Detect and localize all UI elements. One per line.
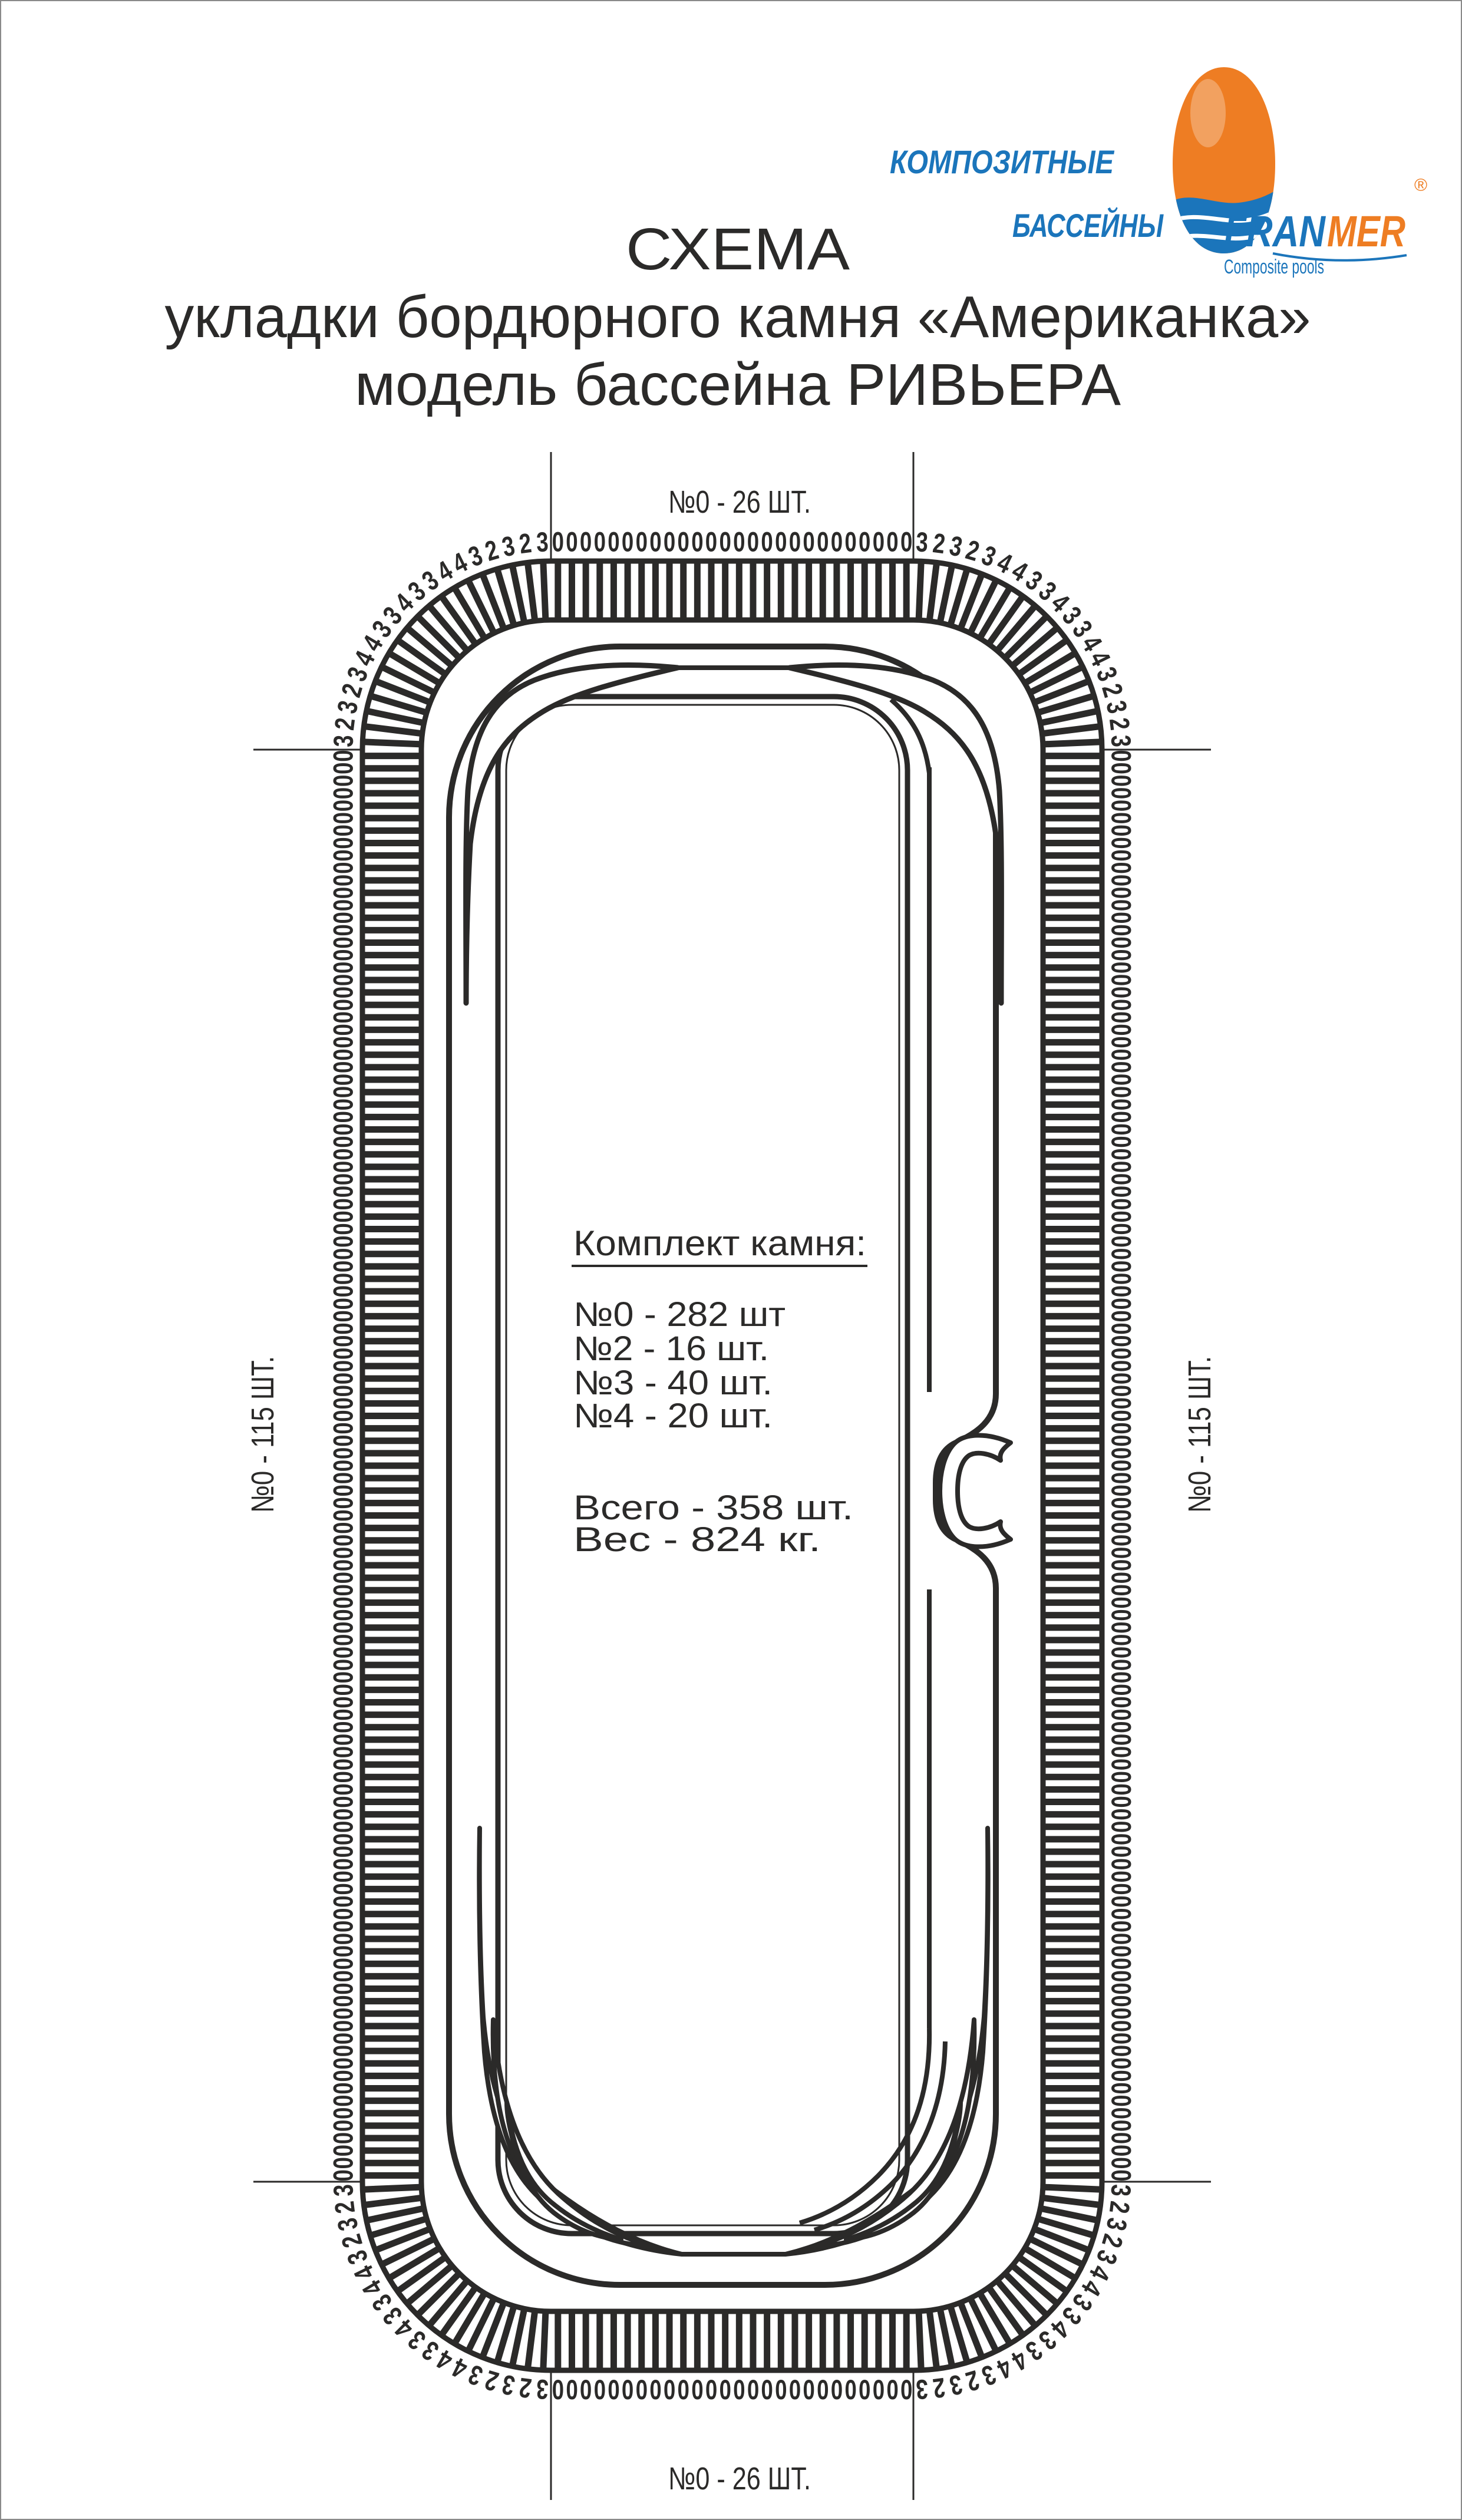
stone-count-digit: 0 [1106, 750, 1137, 761]
corner-leaves-bottom-left [479, 1828, 682, 2254]
brand-tagline: Composite pools [1224, 256, 1324, 278]
stone-count-digit: 0 [608, 2374, 619, 2405]
stone-count-digit: 0 [328, 837, 358, 849]
stone-count-digit: 0 [328, 1397, 358, 1409]
stone-count-digit: 3 [1105, 2183, 1137, 2197]
stone-count-digit: 0 [817, 526, 829, 557]
stone-count-digit: 0 [328, 899, 358, 911]
stone-count-digit: 0 [328, 1485, 358, 1496]
stone-count-digit: 0 [1106, 1348, 1137, 1360]
stone-count-digit: 0 [720, 526, 731, 557]
stone-tick [1042, 2198, 1100, 2205]
stone-count-digit: 0 [328, 1858, 358, 1870]
stone-count-digit: 0 [900, 2374, 912, 2405]
stone-count-digit: 0 [328, 824, 358, 836]
stone-count-digit: 0 [1106, 1236, 1137, 1248]
stone-count-digit: 0 [328, 1622, 358, 1634]
stone-count-digit: 0 [705, 2374, 717, 2405]
stone-count-digit: 0 [328, 1447, 358, 1459]
stone-tick [364, 2198, 422, 2205]
stone-count-digit: 0 [1106, 849, 1137, 861]
stone-count-digit: 3 [536, 2374, 549, 2405]
stone-count-digit: 0 [328, 2132, 358, 2144]
stone-count-digit: 0 [328, 1572, 358, 1584]
stone-count-digit: 0 [328, 1659, 358, 1671]
stone-count-digit: 0 [594, 2374, 606, 2405]
stone-count-digit: 0 [328, 912, 358, 923]
corner-crescent-top-right [790, 665, 1001, 1003]
egg-highlight [1190, 79, 1226, 147]
stone-count-digit: 0 [328, 987, 358, 998]
stone-count-digit: 2 [329, 2199, 361, 2215]
stone-count-digit: 0 [1106, 875, 1137, 886]
stone-count-digit: 0 [1106, 1460, 1137, 1472]
stone-count-digit: 0 [775, 2374, 787, 2405]
stone-count-digit: 0 [328, 1385, 358, 1397]
stone-count-digit: 0 [328, 1472, 358, 1484]
stone-count-digit: 0 [328, 2169, 358, 2181]
stone-count-digit: 0 [328, 1210, 358, 1222]
stone-count-digit: 0 [1106, 1634, 1137, 1646]
stone-count-digit: 0 [1106, 1472, 1137, 1484]
stone-count-digit: 3 [915, 526, 929, 558]
stone-count-digit: 0 [328, 1883, 358, 1895]
stone-count-digit: 0 [328, 936, 358, 948]
stone-count-digit: 0 [328, 1945, 358, 1957]
stone-tick [364, 726, 422, 733]
stone-count-digit: 2 [335, 2231, 368, 2251]
brand-logo: КОМПОЗИТНЫЕ БАССЕЙНЫ FRAN MER ® Composit… [890, 67, 1427, 278]
stone-count-digit: 0 [1106, 1522, 1137, 1534]
stone-count-digit: 0 [328, 1970, 358, 1982]
stone-tick [919, 561, 921, 620]
stone-count-digit: 0 [1106, 1846, 1137, 1858]
stone-count-digit: 0 [1106, 974, 1137, 986]
stone-count-digit: 2 [329, 716, 361, 732]
stone-count-digit: 0 [328, 2020, 358, 2032]
stone-count-digit: 0 [328, 1273, 358, 1285]
stone-count-digit: 0 [328, 1024, 358, 1035]
leaf [479, 1828, 682, 2254]
stone-count-digit: 0 [328, 1871, 358, 1882]
stone-kit-legend: Комплект камня: №0 - 282 шт №2 - 16 шт. … [572, 1223, 867, 1559]
stone-count-digit: 0 [566, 526, 577, 557]
stone-count-digit: 0 [859, 2374, 870, 2405]
stone-count-digit: 0 [328, 2070, 358, 2082]
stone-count-digit: 2 [931, 2372, 947, 2404]
stone-count-digit: 0 [1106, 1011, 1137, 1023]
stone-count-digit: 0 [328, 1149, 358, 1160]
stone-count-digit: 3 [947, 2369, 965, 2401]
stone-count-digit: 2 [1104, 2199, 1136, 2215]
stone-tick [512, 2308, 524, 2366]
stone-count-digit: 0 [328, 1335, 358, 1347]
stone-count-digit: 0 [691, 2374, 703, 2405]
stone-count-digit: 0 [761, 2374, 773, 2405]
stone-count-digit: 0 [636, 2374, 648, 2405]
stone-count-digit: 0 [328, 787, 358, 799]
stone-count-digit: 0 [328, 1559, 358, 1571]
brand-line1: КОМПОЗИТНЫЕ [890, 143, 1114, 180]
stone-count-digit: 0 [1106, 2057, 1137, 2069]
stone-count-digit: 0 [1106, 1024, 1137, 1035]
stone-count-digit: 0 [328, 1783, 358, 1795]
stone-count-digit: 3 [331, 2215, 364, 2234]
stone-count-digit: 2 [481, 534, 502, 567]
stone-tick [940, 565, 952, 623]
stone-tick [1040, 2208, 1098, 2221]
brand-name-fran: FRAN [1224, 207, 1326, 256]
stone-count-digit: 0 [328, 1846, 358, 1858]
stone-count-digit: 0 [328, 1348, 358, 1360]
stone-count-digit: 0 [1106, 999, 1137, 1011]
stone-count-digit: 0 [1106, 1734, 1137, 1746]
stone-count-digit: 0 [1106, 1721, 1137, 1733]
stone-count-digit: 0 [328, 1198, 358, 1210]
stone-count-digit: 0 [328, 1821, 358, 1833]
stone-count-digit: 0 [1106, 1397, 1137, 1409]
stone-count-digit: 0 [328, 1684, 358, 1696]
stone-count-digit: 0 [1106, 1547, 1137, 1559]
stone-count-digit: 0 [1106, 1385, 1137, 1397]
stone-count-digit: 0 [328, 812, 358, 824]
stone-count-digit: 0 [1106, 1447, 1137, 1459]
stone-count-digit: 0 [328, 1161, 358, 1173]
pool-stone-layout-diagram: КОМПОЗИТНЫЕ БАССЕЙНЫ FRAN MER ® Composit… [1, 1, 1462, 2520]
stone-count-digit: 0 [873, 2374, 885, 2405]
stone-count-digit: 0 [761, 526, 773, 557]
stone-count-digit: 0 [328, 1136, 358, 1147]
dimension-label-top: №0 - 26 ШТ. [668, 484, 811, 520]
stone-tick [543, 561, 546, 620]
stone-count-digit: 0 [552, 526, 564, 557]
stone-count-digit: 0 [1106, 1933, 1137, 1945]
stone-count-digit: 0 [328, 924, 358, 936]
legend-item-0: №0 - 282 шт [573, 1295, 786, 1334]
stone-count-digit: 0 [328, 1958, 358, 1970]
stone-count-digit: 0 [1106, 1485, 1137, 1496]
stone-count-digit: 0 [705, 526, 717, 557]
stone-count-digit: 0 [328, 1584, 358, 1596]
stone-count-digit: 2 [1096, 680, 1129, 701]
stone-count-digit: 0 [1106, 2132, 1137, 2144]
stone-count-digit: 0 [873, 526, 885, 557]
stone-count-digit: 0 [1106, 962, 1137, 974]
stone-count-digit: 0 [1106, 824, 1137, 836]
stone-count-digit: 3 [331, 698, 364, 716]
stone-tick [1043, 742, 1102, 744]
stone-count-digit: 0 [328, 962, 358, 974]
stone-count-digit: 0 [1106, 1049, 1137, 1061]
stone-tick [512, 565, 524, 623]
stone-count-digit: 0 [1106, 775, 1137, 787]
stone-count-digit: 0 [1106, 1111, 1137, 1123]
stone-count-digit: 0 [636, 526, 648, 557]
stone-count-digit: 3 [499, 2369, 517, 2401]
stone-count-digit: 0 [1106, 1908, 1137, 1920]
stone-count-digit: 0 [328, 1036, 358, 1048]
stone-count-digit: 0 [328, 750, 358, 761]
stone-count-digit: 0 [1106, 912, 1137, 923]
stone-count-digit: 0 [1106, 1198, 1137, 1210]
stone-count-digit: 0 [594, 526, 606, 557]
stone-count-digit: 0 [1106, 1895, 1137, 1907]
stone-count-digit: 0 [775, 526, 787, 557]
stone-count-digit: 0 [328, 775, 358, 787]
stone-count-digit: 0 [328, 2008, 358, 2020]
stone-count-digit: 0 [328, 1671, 358, 1683]
stone-count-digit: 0 [328, 1360, 358, 1372]
stone-count-digit: 0 [328, 1248, 358, 1260]
stone-count-digit: 0 [1106, 2145, 1137, 2156]
stone-count-digit: 0 [1106, 1958, 1137, 1970]
stone-count-digit: 0 [1106, 1322, 1137, 1334]
stone-count-digit: 0 [1106, 1921, 1137, 1932]
stone-count-digit: 0 [328, 1373, 358, 1384]
stone-count-digit: 0 [328, 1509, 358, 1521]
stone-count-digit: 0 [1106, 1708, 1137, 1720]
stone-count-digit: 0 [328, 1497, 358, 1509]
registered-mark-icon: ® [1414, 176, 1427, 195]
legend-weight: Вес - 824 кг. [573, 1520, 821, 1559]
stone-tick [527, 2310, 534, 2369]
stone-count-digit: 0 [328, 1322, 358, 1334]
stone-count-digit: 0 [328, 2107, 358, 2119]
stone-count-digit: 0 [1106, 1335, 1137, 1347]
stone-count-digit: 0 [552, 2374, 564, 2405]
stone-count-digit: 0 [328, 1173, 358, 1185]
stone-count-digit: 0 [328, 1236, 358, 1248]
floor-edge-outer [498, 697, 907, 2234]
stone-count-digit: 0 [328, 1995, 358, 2007]
stone-count-digit: 0 [1106, 1622, 1137, 1634]
stone-count-digit: 0 [803, 2374, 814, 2405]
stone-count-digit: 0 [1106, 2020, 1137, 2032]
stone-count-digit: 0 [328, 1634, 358, 1646]
dimension-label-bottom: №0 - 26 ШТ. [668, 2461, 811, 2496]
stone-count-digit: 0 [1106, 787, 1137, 799]
stone-count-digit: 0 [622, 526, 633, 557]
stone-count-digit: 0 [1106, 1597, 1137, 1608]
stone-count-digit: 0 [328, 1759, 358, 1770]
stone-tick [940, 2308, 952, 2366]
stone-count-digit: 0 [1106, 2120, 1137, 2132]
stone-count-digit: 0 [328, 2033, 358, 2044]
stone-count-digit: 0 [1106, 2107, 1137, 2119]
stone-count-digit: 0 [328, 887, 358, 899]
stone-count-digit: 0 [328, 1422, 358, 1434]
stone-count-digit: 0 [1106, 763, 1137, 774]
stone-tick [362, 742, 421, 744]
stone-count-digit: 0 [328, 2082, 358, 2094]
brand-name-mer: MER [1327, 207, 1405, 256]
stone-count-digit: 0 [1106, 1809, 1137, 1820]
stone-tick [929, 562, 936, 621]
legend-item-3: №4 - 20 шт. [573, 1397, 773, 1435]
stone-count-digit: 0 [328, 2057, 358, 2069]
stone-count-digit: 0 [1106, 1883, 1137, 1895]
stone-count-digit: 0 [1106, 1435, 1137, 1447]
stone-count-digit: 0 [328, 974, 358, 986]
stone-count-digit: 0 [1106, 1684, 1137, 1696]
pool-interior-details [466, 665, 1011, 2254]
stone-count-digit: 0 [328, 1011, 358, 1023]
floor-edge-inner [506, 705, 899, 2225]
stone-count-digit: 0 [886, 526, 898, 557]
stone-count-digit: 3 [499, 530, 517, 562]
stone-count-digit: 0 [1106, 1310, 1137, 1322]
stone-tick [543, 2311, 546, 2370]
stone-count-digit: 0 [1106, 887, 1137, 899]
stone-count-digit: 0 [649, 526, 661, 557]
dimension-label-left: №0 - 115 ШТ. [245, 1356, 280, 1513]
stone-count-digit: 0 [1106, 1061, 1137, 1073]
stone-count-digit: 0 [831, 2374, 843, 2405]
stone-count-digit: 0 [328, 1895, 358, 1907]
stone-count-digit: 0 [1106, 1036, 1137, 1048]
stone-count-digit: 0 [328, 1435, 358, 1447]
stone-count-digit: 0 [1106, 1410, 1137, 1421]
stone-count-digit: 0 [817, 2374, 829, 2405]
stone-count-digit: 0 [1106, 2157, 1137, 2169]
stone-count-digit: 0 [1106, 1285, 1137, 1297]
stone-count-digit: 0 [1106, 1945, 1137, 1957]
stone-count-digit: 0 [844, 526, 856, 557]
stone-count-digit: 0 [1106, 1535, 1137, 1546]
stone-count-digit: 0 [328, 1771, 358, 1783]
stone-count-digit: 0 [678, 2374, 689, 2405]
stone-count-digit: 0 [328, 949, 358, 961]
stone-count-digit: 0 [886, 2374, 898, 2405]
stone-tick [362, 2187, 421, 2189]
stone-count-digit: 0 [1106, 2045, 1137, 2057]
stone-count-digit: 0 [328, 1708, 358, 1720]
stone-count-digit: 0 [1106, 1161, 1137, 1173]
stone-count-digit: 0 [1106, 1074, 1137, 1086]
stone-count-digit: 0 [1106, 1783, 1137, 1795]
stone-count-digit: 0 [328, 1609, 358, 1621]
stone-count-digit: 0 [328, 2120, 358, 2132]
stone-count-digit: 0 [1106, 1149, 1137, 1160]
stone-count-digit: 0 [691, 526, 703, 557]
stone-count-digit: 0 [1106, 2033, 1137, 2044]
stone-count-digit: 0 [1106, 1759, 1137, 1770]
stone-count-digit: 0 [1106, 1360, 1137, 1372]
stone-count-digit: 2 [962, 2364, 983, 2397]
stone-count-digit: 0 [1106, 800, 1137, 812]
stone-count-digit: 3 [328, 2183, 359, 2197]
stone-count-digit: 0 [328, 1522, 358, 1534]
stone-count-digit: 0 [1106, 1871, 1137, 1882]
title-line3: модель бассейна РИВЬЕРА [355, 352, 1121, 418]
stone-count-digit: 0 [720, 2374, 731, 2405]
stone-count-digit: 0 [664, 526, 675, 557]
stone-count-digit: 0 [328, 1285, 358, 1297]
stone-count-digit: 3 [536, 526, 549, 558]
stone-count-digit: 0 [1106, 1833, 1137, 1845]
brand-line2: БАССЕЙНЫ [1012, 207, 1164, 244]
stone-count-digit: 0 [566, 2374, 577, 2405]
stone-count-digit: 0 [608, 526, 619, 557]
stone-count-digit: 0 [747, 526, 759, 557]
stone-count-digit: 0 [844, 2374, 856, 2405]
stone-count-digit: 0 [1106, 2008, 1137, 2020]
stone-count-digit: 0 [1106, 1970, 1137, 1982]
stone-count-digit: 0 [1106, 1186, 1137, 1198]
stone-count-digit: 0 [1106, 1509, 1137, 1521]
stone-count-digit: 0 [1106, 1248, 1137, 1260]
stone-count-digit: 0 [1106, 1086, 1137, 1098]
stone-count-digit: 0 [1106, 1422, 1137, 1434]
stone-count-digit: 0 [831, 526, 843, 557]
stone-tick [929, 2310, 936, 2369]
stone-count-digit: 0 [1106, 1995, 1137, 2007]
stone-count-digit: 0 [1106, 1796, 1137, 1807]
stone-count-digit: 0 [328, 1074, 358, 1086]
stone-count-digit: 0 [664, 2374, 675, 2405]
stone-tick [919, 2311, 921, 2370]
stone-tick [1043, 2187, 1102, 2189]
stone-count-digit: 0 [1106, 2082, 1137, 2094]
stone-count-digit: 0 [328, 1597, 358, 1608]
diagram-page: КОМПОЗИТНЫЕ БАССЕЙНЫ FRAN MER ® Composit… [0, 0, 1462, 2520]
stone-count-digit: 0 [1106, 1373, 1137, 1384]
stone-count-digit: 0 [328, 1647, 358, 1658]
stone-count-digit: 0 [1106, 1858, 1137, 1870]
stone-count-digit: 0 [1106, 1647, 1137, 1658]
stone-count-digit: 0 [328, 1111, 358, 1123]
stone-count-digit: 0 [649, 2374, 661, 2405]
stone-count-digit: 0 [1106, 1696, 1137, 1708]
stone-count-digit: 0 [733, 2374, 745, 2405]
stone-count-digit: 0 [1106, 812, 1137, 824]
stone-count-digit: 0 [1106, 949, 1137, 961]
stone-count-digit: 0 [328, 1061, 358, 1073]
stone-count-digit: 0 [1106, 1123, 1137, 1135]
stone-count-digit: 0 [328, 1809, 358, 1820]
stone-count-digit: 0 [1106, 1497, 1137, 1509]
stone-count-digit: 0 [1106, 924, 1137, 936]
stone-count-digit: 2 [517, 527, 533, 560]
pool-wall [449, 647, 996, 2285]
stone-count-digit: 0 [1106, 2070, 1137, 2082]
stone-count-digit: 0 [1106, 1261, 1137, 1272]
stone-count-digit: 0 [747, 2374, 759, 2405]
stone-count-digit: 0 [1106, 1572, 1137, 1584]
stone-count-digit: 2 [1104, 716, 1136, 732]
stone-count-digit: 0 [328, 1796, 358, 1807]
stone-count-digit: 0 [328, 1908, 358, 1920]
stone-count-digit: 2 [931, 527, 947, 560]
stone-count-digit: 0 [678, 526, 689, 557]
stone-count-digit: 0 [328, 1547, 358, 1559]
legend-item-1: №2 - 16 шт. [573, 1330, 769, 1368]
stone-count-digit: 3 [1105, 734, 1137, 748]
stone-count-digit: 0 [328, 999, 358, 1011]
stone-count-digit: 0 [328, 1983, 358, 1994]
stone-count-digit: 0 [328, 1696, 358, 1708]
stone-count-digit: 0 [789, 2374, 801, 2405]
stone-count-digit: 3 [1100, 2215, 1133, 2234]
stone-count-digit: 0 [1106, 1099, 1137, 1110]
pool-shell [449, 647, 996, 2285]
stone-count-digit: 0 [1106, 1173, 1137, 1185]
stone-count-digit: 0 [328, 1721, 358, 1733]
stone-count-digit: 0 [328, 1833, 358, 1845]
stone-count-digit: 0 [328, 1261, 358, 1272]
stone-count-digit: 0 [1106, 2095, 1137, 2107]
stone-count-digit: 3 [915, 2374, 929, 2405]
